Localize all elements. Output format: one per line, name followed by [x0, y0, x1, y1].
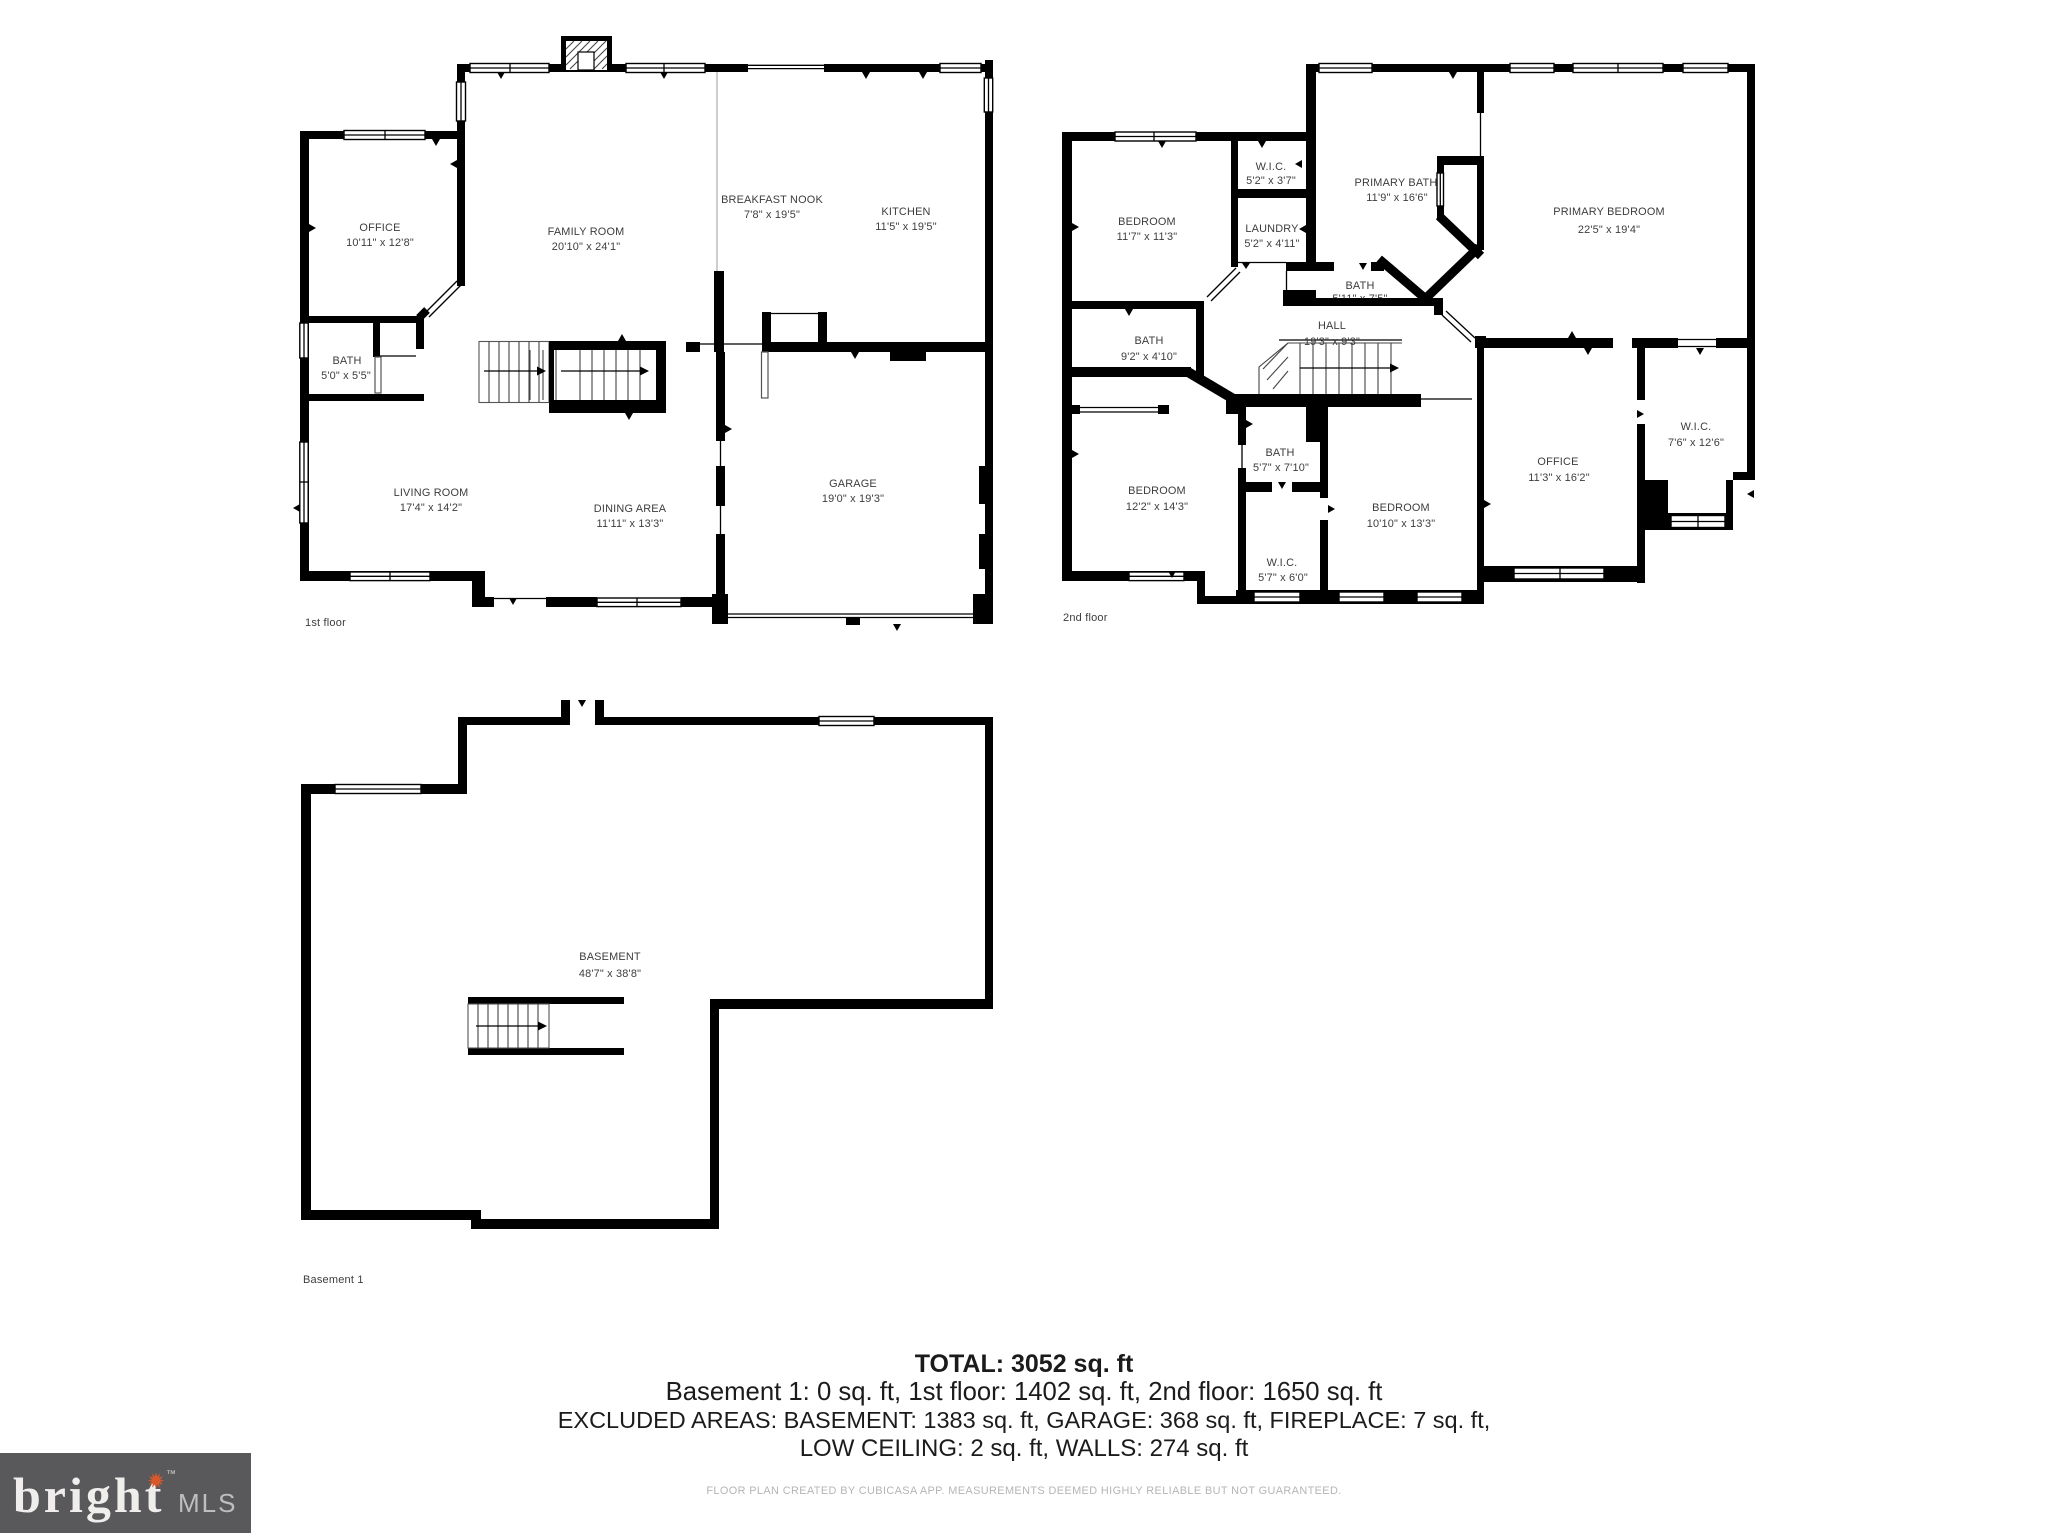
svg-text:LIVING ROOM: LIVING ROOM [394, 487, 469, 499]
svg-text:19'0" x 19'3": 19'0" x 19'3" [822, 493, 884, 505]
svg-text:12'2" x 14'3": 12'2" x 14'3" [1126, 501, 1188, 513]
svg-text:BATH: BATH [1134, 335, 1163, 347]
svg-text:48'7" x 38'8": 48'7" x 38'8" [579, 968, 641, 980]
svg-text:11'11" x 13'3": 11'11" x 13'3" [597, 518, 664, 530]
svg-text:BATH: BATH [1345, 280, 1374, 292]
svg-text:5'7" x 7'10": 5'7" x 7'10" [1253, 462, 1309, 474]
svg-text:20'10" x 24'1": 20'10" x 24'1" [552, 241, 621, 253]
svg-text:DINING AREA: DINING AREA [594, 503, 667, 515]
svg-text:W.I.C.: W.I.C. [1256, 161, 1287, 173]
svg-text:FLOOR PLAN CREATED BY CUBICASA: FLOOR PLAN CREATED BY CUBICASA APP. MEAS… [706, 1485, 1341, 1497]
svg-text:PRIMARY BEDROOM: PRIMARY BEDROOM [1553, 206, 1665, 218]
svg-text:19'3" x 9'3": 19'3" x 9'3" [1304, 336, 1360, 348]
svg-text:22'5" x 19'4": 22'5" x 19'4" [1578, 224, 1640, 236]
svg-text:9'2" x 4'10": 9'2" x 4'10" [1121, 351, 1177, 363]
svg-text:bright: bright [13, 1467, 164, 1523]
svg-text:10'11" x 12'8": 10'11" x 12'8" [346, 237, 414, 249]
svg-text:5'0" x 5'5": 5'0" x 5'5" [321, 370, 371, 382]
svg-text:5'7" x 6'0": 5'7" x 6'0" [1258, 572, 1308, 584]
svg-text:1st floor: 1st floor [305, 617, 346, 629]
svg-text:W.I.C.: W.I.C. [1267, 557, 1298, 569]
svg-text:™: ™ [166, 1469, 176, 1480]
svg-text:11'7" x 11'3": 11'7" x 11'3" [1117, 231, 1178, 243]
svg-text:7'8" x 19'5": 7'8" x 19'5" [744, 209, 800, 221]
svg-text:BASEMENT: BASEMENT [579, 951, 641, 963]
svg-text:MLS: MLS [178, 1488, 237, 1518]
svg-text:BEDROOM: BEDROOM [1372, 502, 1430, 514]
svg-text:OFFICE: OFFICE [1537, 456, 1578, 468]
svg-text:BEDROOM: BEDROOM [1128, 485, 1186, 497]
svg-text:5'2" x 4'11": 5'2" x 4'11" [1244, 238, 1299, 250]
svg-text:11'9" x 16'6": 11'9" x 16'6" [1366, 192, 1428, 204]
svg-text:17'4" x 14'2": 17'4" x 14'2" [400, 502, 462, 514]
svg-text:5'2" x 3'7": 5'2" x 3'7" [1246, 175, 1296, 187]
svg-text:W.I.C.: W.I.C. [1681, 421, 1712, 433]
svg-text:EXCLUDED AREAS: BASEMENT: 1383: EXCLUDED AREAS: BASEMENT: 1383 sq. ft, G… [558, 1407, 1491, 1433]
svg-text:BATH: BATH [332, 355, 361, 367]
svg-text:11'5" x 19'5": 11'5" x 19'5" [875, 221, 937, 233]
svg-text:Basement 1: Basement 1 [303, 1274, 364, 1286]
svg-text:OFFICE: OFFICE [359, 222, 400, 234]
svg-text:TOTAL: 3052 sq. ft: TOTAL: 3052 sq. ft [915, 1350, 1134, 1378]
svg-text:FAMILY ROOM: FAMILY ROOM [548, 226, 625, 238]
svg-text:GARAGE: GARAGE [829, 478, 877, 490]
svg-text:PRIMARY BATH: PRIMARY BATH [1355, 177, 1438, 189]
svg-text:HALL: HALL [1318, 320, 1346, 332]
svg-text:LOW CEILING: 2 sq. ft, WALLS:: LOW CEILING: 2 sq. ft, WALLS: 274 sq. ft [800, 1435, 1249, 1462]
svg-text:Basement 1: 0 sq. ft, 1st floo: Basement 1: 0 sq. ft, 1st floor: 1402 sq… [666, 1378, 1383, 1406]
svg-text:10'10" x 13'3": 10'10" x 13'3" [1367, 518, 1436, 530]
svg-text:BREAKFAST NOOK: BREAKFAST NOOK [721, 194, 823, 206]
svg-text:BEDROOM: BEDROOM [1118, 216, 1176, 228]
svg-text:BATH: BATH [1265, 447, 1294, 459]
svg-text:LAUNDRY: LAUNDRY [1245, 223, 1299, 235]
svg-text:7'6" x 12'6": 7'6" x 12'6" [1668, 437, 1724, 449]
svg-text:KITCHEN: KITCHEN [881, 206, 930, 218]
svg-text:2nd floor: 2nd floor [1063, 612, 1108, 624]
svg-text:11'3" x 16'2": 11'3" x 16'2" [1528, 472, 1590, 484]
